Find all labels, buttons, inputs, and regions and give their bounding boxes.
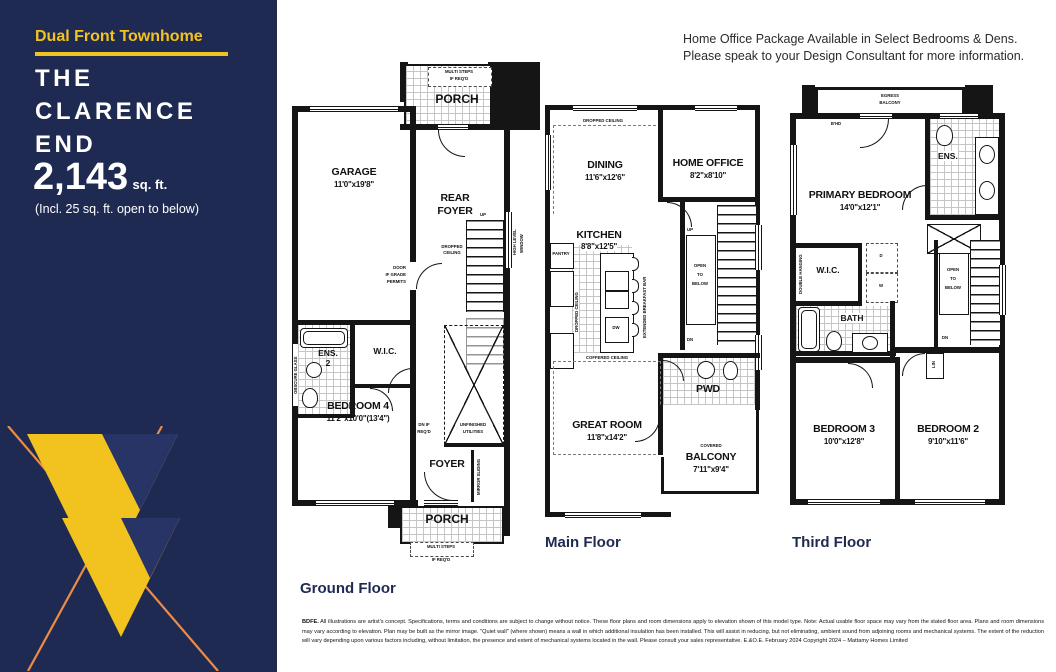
double-hanging-note: DOUBLE HANGING: [798, 249, 803, 299]
dropped-ceiling-note: DROPPED CEILING: [574, 279, 579, 345]
steps-note: MULTI STEPS: [445, 69, 473, 74]
linen-label: LIN: [931, 355, 936, 375]
sink: [697, 361, 715, 379]
floor-label-ground: Ground Floor: [300, 580, 396, 597]
high-level-window-note: HIGH LEVEL: [512, 212, 517, 272]
window: [790, 145, 797, 215]
breakfast-bar-note: EXTENDED BREAKFAST BAR: [642, 263, 647, 351]
wall: [802, 85, 815, 115]
cooktop: [605, 291, 629, 309]
garage-door: [310, 106, 398, 112]
window: [808, 499, 880, 505]
egress-balcony-label: BALCONY: [879, 100, 900, 105]
plan-code: BDFE.: [302, 619, 319, 625]
room-dims-bedroom2: 9'10"x11'6": [928, 437, 968, 446]
ground-floor-plan: MULTI STEPS IF REQ'D PORCH DOOR IF GRADE…: [292, 62, 540, 577]
open-to-below-label: TO: [697, 272, 703, 277]
home-office-note: Home Office Package Available in Select …: [683, 31, 1024, 64]
open-to-below-label: OPEN: [947, 267, 959, 272]
room-label-ensuite2: ENS.: [318, 348, 338, 358]
product-tagline: Dual Front Townhome: [35, 28, 203, 46]
wall: [292, 106, 298, 506]
washer-label: W: [879, 283, 883, 288]
wall: [895, 347, 1005, 353]
toilet: [826, 331, 842, 351]
dn-if-reqd-note: DN IF: [418, 422, 429, 427]
wall: [488, 62, 540, 130]
stairs-dn-label: DN: [687, 337, 693, 342]
room-label-primary-bedroom: PRIMARY BEDROOM: [809, 189, 912, 201]
room-label-wic: W.I.C.: [816, 265, 839, 275]
door-arc: [860, 119, 889, 148]
room-dims-dining: 11'6"x12'6": [585, 173, 625, 182]
room-dims-kitchen: 8'8"x12'5": [581, 242, 617, 251]
floor-plan-brochure-page: Dual Front Townhome THE CLARENCE END 2,1…: [0, 0, 1056, 672]
washer: [866, 273, 898, 303]
dn-if-reqd-note: REQ'D: [417, 429, 430, 434]
balcony-rail: [661, 491, 759, 494]
wall: [444, 443, 510, 447]
room-label-rear-foyer: FOYER: [437, 205, 472, 217]
mirror-sliding-note: MIRROR SLIDING: [476, 452, 481, 502]
grade-door-note: IF GRADE: [380, 272, 406, 277]
room-label-ensuite: ENS.: [938, 151, 958, 161]
obscure-glass-note: OBSCURE GLASS: [293, 344, 298, 406]
sink: [862, 336, 878, 350]
square-footage: 2,143: [33, 156, 128, 198]
wall: [658, 110, 663, 200]
wall: [895, 363, 900, 500]
room-dims-bedroom4: 11'2"x10'0"(13'4"): [327, 414, 390, 423]
stairs-up-label: UP: [687, 227, 693, 232]
floor-label-main: Main Floor: [545, 534, 621, 551]
balcony-rail: [661, 457, 664, 493]
room-label-ensuite2-number: 2: [326, 358, 331, 368]
dryer: [866, 243, 898, 273]
open-to-below-label: BELOW: [945, 285, 961, 290]
room-label-kitchen: KITCHEN: [576, 229, 621, 241]
door-arc: [848, 363, 873, 388]
window: [565, 512, 641, 518]
bar-stool: [632, 279, 639, 293]
dryer-label: D: [879, 253, 882, 258]
balcony-rail: [815, 87, 965, 90]
open-to-below-label: TO: [950, 276, 956, 281]
door-arc: [416, 263, 442, 289]
balcony-rail: [815, 87, 818, 113]
open-to-below-label: BELOW: [692, 281, 708, 286]
dropped-ceiling-note: CEILING: [443, 250, 460, 255]
grade-door-note: PERMITS: [380, 279, 406, 284]
open-to-below-label: OPEN: [694, 263, 706, 268]
egress-balcony-label: EGRESS: [881, 93, 899, 98]
room-dims-bedroom3: 10'0"x12'8": [824, 437, 864, 446]
room-label-powder: PWD: [696, 383, 720, 395]
mattamy-triangle-logo: [0, 426, 245, 671]
wall: [790, 357, 900, 363]
steps-note: IF REQ'D: [432, 557, 450, 562]
window: [915, 499, 985, 505]
room-label-foyer: FOYER: [429, 458, 464, 470]
room-dims-home-office: 8'2"x8'10": [690, 171, 726, 180]
tub: [300, 328, 348, 348]
floor-label-third: Third Floor: [792, 534, 871, 551]
third-floor-plan: EGRESS BALCONY B'HD PRIMARY BEDROOM 14'0…: [790, 85, 1005, 510]
room-label-home-office: HOME OFFICE: [673, 157, 744, 169]
high-level-window-note: WINDOW: [519, 214, 524, 274]
sidebar: Dual Front Townhome THE CLARENCE END 2,1…: [0, 0, 277, 672]
area-note: (Incl. 25 sq. ft. open to below): [35, 202, 199, 216]
door-arc: [424, 472, 453, 501]
wall: [858, 243, 862, 305]
window: [573, 105, 637, 111]
closet-front: [471, 450, 474, 502]
open-to-below-void: [939, 253, 969, 315]
tub: [798, 307, 820, 352]
window: [999, 265, 1006, 315]
stairs-up: [466, 220, 504, 312]
room-label-great-room: GREAT ROOM: [572, 419, 642, 431]
balcony-covered-note: COVERED: [700, 443, 721, 448]
room-label-porch: PORCH: [435, 92, 478, 106]
sink: [979, 181, 995, 200]
window: [505, 212, 512, 268]
dropped-ceiling-note: DROPPED CEILING: [583, 118, 623, 123]
dishwasher-label: DW: [612, 325, 619, 330]
door-arc: [902, 353, 925, 376]
balcony-rail: [962, 87, 965, 113]
room-label-wic: W.I.C.: [373, 346, 396, 356]
stairs-up-label: UP: [480, 212, 486, 217]
legal-disclaimer: BDFE. All illustrations are artist's con…: [302, 618, 1044, 647]
pantry-cabinet: [550, 243, 574, 269]
toilet: [723, 361, 738, 380]
stairs-dn-label: DN: [942, 335, 948, 340]
wall: [934, 240, 938, 350]
toilet: [936, 125, 953, 146]
sink: [979, 145, 995, 164]
room-label-bedroom3: BEDROOM 3: [813, 423, 875, 435]
steps-note: MULTI STEPS: [427, 544, 455, 549]
room-label-porch: PORCH: [425, 512, 468, 526]
bar-stool: [632, 323, 639, 337]
room-label-garage: GARAGE: [332, 166, 377, 178]
unfinished-utilities-label: UTILITIES: [463, 429, 483, 434]
door-arc: [438, 130, 465, 157]
steps-note: IF REQ'D: [450, 76, 468, 81]
stairs: [717, 205, 757, 345]
room-label-balcony: BALCONY: [686, 451, 737, 463]
wall: [925, 215, 1005, 220]
sink: [306, 362, 322, 378]
wall: [658, 197, 760, 202]
counter: [550, 271, 574, 307]
unfinished-utilities-area: [444, 325, 504, 445]
unfinished-utilities-label: UNFINISHED: [460, 422, 486, 427]
window: [695, 105, 737, 111]
pantry-label: PANTRY: [552, 251, 569, 256]
home-office-note-line1: Home Office Package Available in Select …: [683, 31, 1024, 48]
bar-stool: [632, 257, 639, 271]
square-footage-unit: sq. ft.: [133, 177, 168, 192]
dropped-ceiling-note: DROPPED: [441, 244, 462, 249]
room-dims-primary-bedroom: 14'0"x12'1": [840, 203, 880, 212]
main-floor-plan: DROPPED CEILING DINING 11'6"x12'6" HOME …: [545, 105, 760, 517]
wall: [965, 85, 993, 115]
room-label-bedroom4: BEDROOM 4: [327, 400, 389, 412]
bar-stool: [632, 301, 639, 315]
room-label-dining: DINING: [587, 159, 623, 171]
room-label-bath: BATH: [841, 313, 864, 323]
area-line: 2,143 sq. ft.: [33, 156, 167, 199]
legal-disclaimer-text: All illustrations are artist's concept. …: [302, 619, 1044, 644]
window: [545, 135, 551, 190]
wall: [388, 506, 400, 528]
wall: [790, 243, 862, 248]
balcony-rail: [756, 410, 759, 493]
wall: [680, 200, 685, 350]
toilet: [302, 388, 318, 408]
grade-door-note: DOOR: [380, 265, 406, 270]
yellow-rule: [35, 52, 228, 56]
coffered-ceiling-note: COFFERED CEILING: [586, 355, 628, 360]
door-arc: [388, 368, 413, 393]
room-dims-garage: 11'0"x19'8": [334, 180, 374, 189]
bulkhead-note: B'HD: [831, 121, 841, 126]
window: [755, 225, 762, 270]
window: [316, 500, 394, 506]
wall: [410, 106, 416, 262]
wall: [658, 405, 663, 455]
room-label-bedroom2: BEDROOM 2: [917, 423, 979, 435]
cooktop: [605, 271, 629, 291]
dishwasher: [605, 317, 629, 343]
stairs: [970, 240, 1001, 345]
room-dims-balcony: 7'11"x9'4": [693, 465, 729, 474]
wall: [504, 124, 510, 506]
room-label-rear-foyer: REAR: [441, 192, 470, 204]
home-office-note-line2: Please speak to your Design Consultant f…: [683, 48, 1024, 65]
model-name: THE CLARENCE END: [35, 62, 196, 161]
room-dims-great-room: 11'8"x14'2": [587, 433, 627, 442]
open-to-below-void: [686, 235, 716, 325]
